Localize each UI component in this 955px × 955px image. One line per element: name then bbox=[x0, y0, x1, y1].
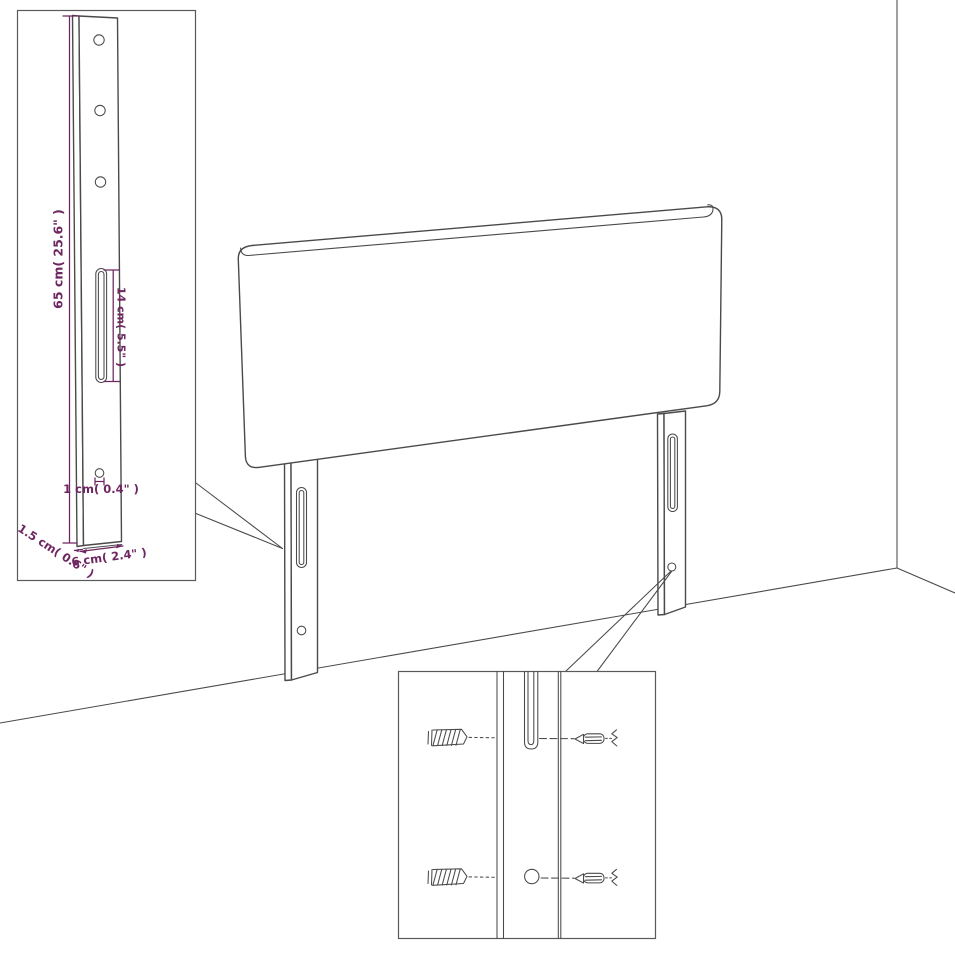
wood-screw-icon bbox=[428, 869, 467, 886]
hardware-detail-inset-box bbox=[399, 672, 656, 939]
bolt-icon bbox=[575, 730, 617, 746]
leader-line bbox=[196, 514, 283, 549]
zigzag-mark bbox=[612, 730, 617, 746]
leader-lines-right bbox=[566, 572, 672, 672]
leader-lines-left bbox=[196, 483, 283, 549]
dimension-label-hole-diameter: 1 cm( 0.4" ) bbox=[63, 482, 139, 496]
leader-line bbox=[196, 483, 283, 549]
wood-screw-icon bbox=[428, 729, 467, 746]
zigzag-mark bbox=[612, 869, 617, 885]
headboard-panel bbox=[238, 205, 722, 468]
leg-edge-strip bbox=[497, 672, 561, 939]
slot-section-detail bbox=[525, 672, 538, 750]
mounting-hole-detail bbox=[525, 869, 539, 883]
bracket-front-face bbox=[79, 16, 122, 546]
hardware-row-bottom bbox=[428, 869, 617, 886]
hardware-row-top bbox=[428, 729, 617, 746]
leader-line bbox=[566, 572, 671, 672]
leader-line bbox=[597, 572, 672, 672]
dimension-label-bracket-height: 65 cm( 25.6" ) bbox=[51, 209, 66, 309]
dimension-label-slot-length: 14 cm( 5.5" ) bbox=[115, 287, 128, 367]
bolt-icon bbox=[575, 869, 617, 885]
panel-outline bbox=[238, 207, 722, 468]
floor-line-left bbox=[0, 568, 897, 723]
assembly-diagram-page: { "diagram": { "title": "headboard-assem… bbox=[0, 0, 955, 955]
assembly-diagram-canvas bbox=[0, 0, 955, 955]
inset-border bbox=[399, 672, 656, 939]
headboard-left-leg bbox=[285, 455, 318, 681]
floor-line-right bbox=[897, 568, 955, 593]
